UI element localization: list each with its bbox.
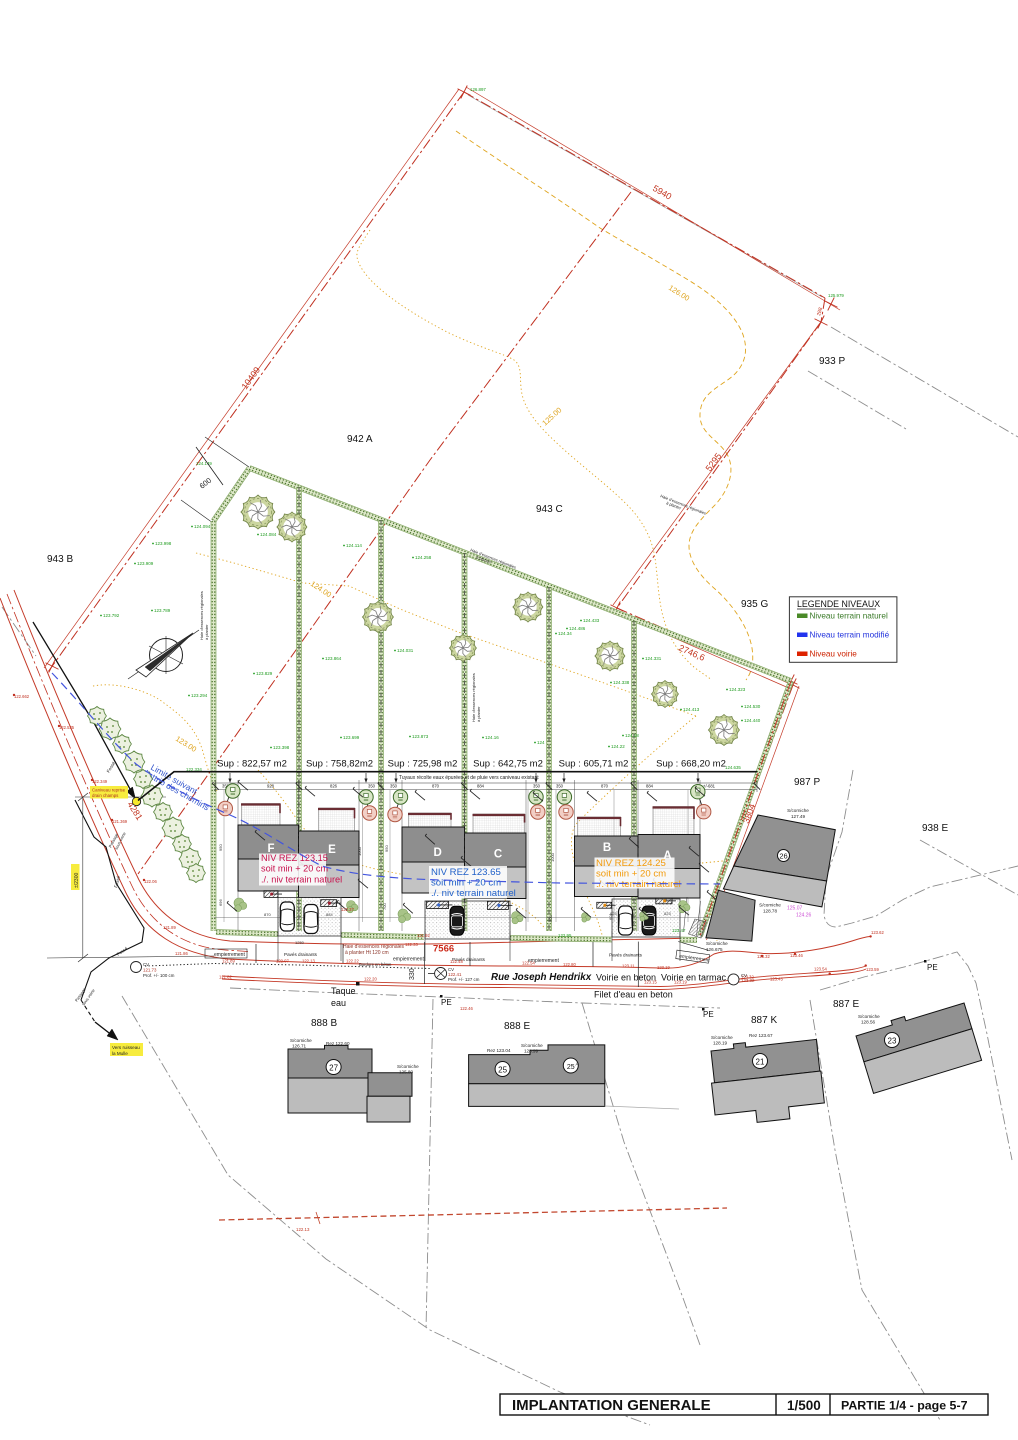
svg-text:A: A (576, 1062, 579, 1067)
svg-text:124.323: 124.323 (729, 687, 746, 692)
svg-text:123.47: 123.47 (672, 928, 686, 933)
svg-text:123.398: 123.398 (273, 745, 290, 750)
svg-text:124.031: 124.031 (397, 648, 414, 653)
svg-text:826: 826 (330, 784, 338, 789)
svg-text:950: 950 (384, 845, 389, 852)
svg-text:Caniveau reprise: Caniveau reprise (92, 788, 126, 793)
svg-text:Voirie en tarmac: Voirie en tarmac (661, 973, 727, 983)
svg-text:121.89: 121.89 (163, 925, 176, 930)
svg-text:Vers ruisseau: Vers ruisseau (112, 1045, 140, 1050)
svg-text:123.998: 123.998 (155, 541, 172, 546)
svg-text:888 E: 888 E (504, 1021, 530, 1032)
svg-text:7566: 7566 (433, 944, 454, 955)
svg-text:128.78: 128.78 (763, 909, 777, 914)
svg-text:124.440: 124.440 (744, 718, 761, 723)
svg-text:987 P: 987 P (794, 777, 820, 788)
svg-text:Niveau terrain naturel: Niveau terrain naturel (810, 612, 888, 621)
svg-text:Sup : 605,71 m2: Sup : 605,71 m2 (559, 759, 629, 770)
svg-text:Rue Joseph Hendrikx: Rue Joseph Hendrikx (491, 972, 592, 983)
svg-text:Rez 122.60: Rez 122.60 (326, 1041, 350, 1046)
svg-text:123.32: 123.32 (741, 978, 755, 983)
svg-text:LEGENDE NIVEAUX: LEGENDE NIVEAUX (797, 599, 880, 609)
svg-text:26: 26 (779, 852, 787, 861)
svg-text:124: 124 (537, 740, 545, 745)
svg-text:124.094: 124.094 (194, 524, 211, 529)
svg-text:D: D (433, 847, 441, 859)
svg-text:123.62: 123.62 (871, 930, 884, 935)
svg-text:123.789: 123.789 (154, 608, 171, 613)
svg-text:928: 928 (267, 784, 275, 789)
svg-text:935 G: 935 G (741, 599, 768, 610)
svg-text:123.54: 123.54 (814, 967, 827, 972)
svg-text:870: 870 (601, 784, 609, 789)
svg-text:Filet d'eau en beton: Filet d'eau en beton (594, 990, 673, 1000)
svg-text:Sup : 758,82m2: Sup : 758,82m2 (306, 759, 373, 770)
svg-text:124.26: 124.26 (796, 913, 812, 919)
svg-text:Sup : 642,75 m2: Sup : 642,75 m2 (473, 759, 543, 770)
svg-text:S/corniche: S/corniche (290, 1038, 312, 1043)
svg-text:124.084: 124.084 (260, 532, 277, 537)
svg-text:122.33: 122.33 (405, 942, 418, 947)
svg-text:123.699: 123.699 (343, 735, 360, 740)
svg-text:124.22: 124.22 (611, 744, 625, 749)
svg-text:Bordure en béton: Bordure en béton (359, 962, 392, 967)
svg-text:Prof. +/- 100 cm: Prof. +/- 100 cm (143, 973, 175, 978)
svg-text:350: 350 (556, 784, 564, 789)
svg-text:IMPLANTATION GENERALE: IMPLANTATION GENERALE (512, 1397, 711, 1414)
svg-text:±/2300: ±/2300 (74, 873, 80, 888)
svg-text:Pavés drainants: Pavés drainants (284, 952, 318, 957)
svg-text:Sup : 822,57 m2: Sup : 822,57 m2 (217, 759, 287, 770)
svg-text:126.675: 126.675 (706, 947, 723, 952)
svg-text:128.56: 128.56 (861, 1020, 875, 1025)
svg-text:NIV REZ 123.15: NIV REZ 123.15 (261, 853, 328, 863)
svg-text:887 E: 887 E (833, 999, 859, 1010)
svg-text:123.294: 123.294 (191, 693, 208, 698)
svg-text:128.19: 128.19 (713, 1041, 727, 1046)
svg-text:S/corniche: S/corniche (787, 808, 809, 813)
svg-text:123.46: 123.46 (790, 953, 803, 958)
svg-text:122.95: 122.95 (558, 933, 572, 938)
svg-text:soit min + 20 cm: soit min + 20 cm (261, 864, 328, 874)
svg-text:à planter: à planter (476, 706, 481, 722)
svg-text:S/corniche: S/corniche (858, 1014, 880, 1019)
svg-text:124.635: 124.635 (725, 765, 741, 770)
svg-text:122.54: 122.54 (522, 961, 535, 966)
svg-text:950: 950 (218, 844, 223, 851)
svg-text:1250: 1250 (295, 940, 305, 945)
svg-text:à planter: à planter (204, 624, 209, 640)
svg-text:S/corniche: S/corniche (759, 903, 781, 908)
svg-text:123.864: 123.864 (325, 656, 342, 661)
svg-text:soit min + 20 cm: soit min + 20 cm (431, 878, 501, 889)
svg-text:884: 884 (646, 784, 654, 789)
svg-text:124.433: 124.433 (583, 618, 600, 623)
svg-text:Tuyaux récolte eaux épurées et: Tuyaux récolte eaux épurées et de pluie … (399, 775, 539, 781)
svg-text:887 K: 887 K (751, 1015, 777, 1026)
svg-text:943 B: 943 B (47, 554, 73, 565)
svg-text:124.413: 124.413 (683, 707, 700, 712)
svg-text:121.92: 121.92 (417, 933, 430, 938)
svg-text:124.149: 124.149 (196, 461, 212, 466)
svg-text:126.71: 126.71 (292, 1044, 306, 1049)
svg-text:empierrement: empierrement (393, 957, 424, 963)
svg-text:870: 870 (264, 912, 271, 917)
svg-text:PARTIE 1/4 - page 5-7: PARTIE 1/4 - page 5-7 (841, 1399, 968, 1413)
svg-text:125.80: 125.80 (399, 1070, 413, 1075)
svg-text:./. niv terrain naturel: ./. niv terrain naturel (596, 879, 681, 890)
svg-text:124.34: 124.34 (558, 631, 572, 636)
svg-text:122.46: 122.46 (460, 1006, 473, 1011)
svg-text:122.06: 122.06 (144, 879, 157, 884)
svg-text:./. niv terrain naturel: ./. niv terrain naturel (431, 888, 516, 899)
svg-text:350: 350 (368, 784, 376, 789)
svg-text:S/corniche: S/corniche (706, 941, 728, 946)
svg-text:122.37: 122.37 (341, 907, 354, 912)
svg-text:Pavés drainants: Pavés drainants (609, 953, 643, 958)
svg-text:600: 600 (548, 915, 553, 922)
svg-text:123.909: 123.909 (137, 561, 154, 566)
svg-text:drain champs: drain champs (92, 793, 119, 798)
svg-text:126.897: 126.897 (470, 87, 486, 92)
svg-text:S/corniche: S/corniche (521, 1043, 543, 1048)
svg-text:123.11: 123.11 (622, 964, 635, 969)
svg-text:700: 700 (382, 903, 387, 910)
svg-text:PE: PE (927, 963, 938, 972)
svg-text:123.19: 123.19 (674, 980, 687, 985)
svg-text:122.535: 122.535 (59, 725, 75, 730)
svg-text:933 P: 933 P (819, 356, 845, 367)
svg-text:123.59: 123.59 (866, 967, 879, 972)
svg-text:Niveau terrain modifié: Niveau terrain modifié (810, 631, 890, 640)
svg-text:121.369: 121.369 (112, 819, 128, 824)
svg-text:121.86: 121.86 (175, 951, 188, 956)
svg-text:C: C (494, 849, 502, 861)
svg-text:121.89: 121.89 (222, 959, 235, 964)
svg-text:124.16: 124.16 (485, 735, 499, 740)
svg-text:122.349: 122.349 (92, 779, 108, 784)
svg-text:124.331: 124.331 (645, 656, 662, 661)
svg-text:NIV REZ 124.25: NIV REZ 124.25 (596, 858, 666, 869)
svg-text:122.07: 122.07 (276, 959, 289, 964)
svg-text:124.114: 124.114 (346, 543, 362, 548)
svg-text:123.32: 123.32 (757, 954, 770, 959)
svg-text:124.258: 124.258 (415, 555, 432, 560)
svg-text:la Mulle: la Mulle (112, 1051, 128, 1056)
svg-text:884: 884 (477, 784, 485, 789)
svg-text:123.43: 123.43 (770, 977, 783, 982)
svg-text:25: 25 (567, 1064, 575, 1071)
svg-text:696: 696 (218, 899, 223, 906)
svg-text:Taque: Taque (331, 986, 356, 996)
svg-text:123.15: 123.15 (644, 980, 657, 985)
svg-text:à planter Ht 120 cm: à planter Ht 120 cm (345, 950, 389, 956)
svg-text:+/-681: +/-681 (703, 784, 716, 789)
svg-text:122.13: 122.13 (302, 959, 315, 964)
svg-text:23: 23 (888, 1037, 897, 1046)
svg-text:empierrement: empierrement (214, 952, 245, 958)
svg-text:soit min + 20 cm: soit min + 20 cm (596, 869, 666, 880)
svg-text:124.18: 124.18 (625, 733, 639, 738)
svg-text:NIV REZ 123.65: NIV REZ 123.65 (431, 867, 501, 878)
svg-text:PE: PE (703, 1010, 714, 1019)
svg-text:942 A: 942 A (347, 434, 373, 445)
svg-text:121.73: 121.73 (143, 968, 157, 973)
svg-text:124.486: 124.486 (569, 626, 586, 631)
svg-text:125.07: 125.07 (787, 906, 803, 912)
svg-text:S/corniche: S/corniche (711, 1035, 733, 1040)
svg-text:eau: eau (331, 998, 346, 1008)
svg-text:121.82: 121.82 (219, 975, 232, 980)
svg-text:127.49: 127.49 (791, 814, 805, 819)
svg-text:Prof. +/- 127 cm: Prof. +/- 127 cm (448, 977, 480, 982)
svg-text:Niveau voirie: Niveau voirie (810, 650, 858, 659)
svg-text:350: 350 (390, 784, 398, 789)
svg-text:1000: 1000 (550, 852, 555, 862)
svg-text:./. niv terrain naturel: ./. niv terrain naturel (261, 875, 342, 885)
svg-text:122.22: 122.22 (346, 959, 359, 964)
svg-text:128.99: 128.99 (524, 1049, 538, 1054)
svg-text:122.20: 122.20 (364, 977, 377, 982)
svg-text:21: 21 (756, 1058, 765, 1067)
svg-text:Rez 123.67: Rez 123.67 (749, 1033, 773, 1038)
svg-text:122.80: 122.80 (563, 962, 576, 967)
svg-text:1/500: 1/500 (787, 1398, 821, 1413)
svg-text:943 C: 943 C (536, 504, 563, 515)
svg-text:122.48: 122.48 (450, 959, 463, 964)
svg-text:888 B: 888 B (311, 1018, 337, 1029)
svg-text:Sup : 725,98 m2: Sup : 725,98 m2 (388, 759, 458, 770)
svg-text:E: E (328, 844, 336, 856)
svg-text:27: 27 (329, 1064, 338, 1073)
svg-text:122.662: 122.662 (14, 694, 30, 699)
svg-text:125.979: 125.979 (828, 293, 844, 298)
svg-text:938 E: 938 E (922, 823, 948, 834)
svg-text:Rez 123.04: Rez 123.04 (487, 1048, 511, 1053)
svg-text:124.530: 124.530 (744, 704, 761, 709)
svg-text:330: 330 (409, 968, 416, 980)
svg-text:350: 350 (533, 784, 541, 789)
svg-text:B: B (603, 842, 611, 854)
svg-text:123.19: 123.19 (657, 965, 670, 970)
svg-text:122.13: 122.13 (296, 1227, 310, 1232)
svg-text:123.829: 123.829 (256, 671, 273, 676)
svg-text:870: 870 (432, 784, 440, 789)
svg-text:PE: PE (441, 998, 452, 1007)
svg-text:123.792: 123.792 (103, 613, 120, 618)
svg-text:Sup : 668,20 m2: Sup : 668,20 m2 (656, 759, 726, 770)
svg-text:124.338: 124.338 (613, 680, 630, 685)
svg-text:S/corniche: S/corniche (397, 1064, 419, 1069)
svg-text:123.873: 123.873 (412, 734, 429, 739)
svg-text:25: 25 (498, 1066, 507, 1075)
